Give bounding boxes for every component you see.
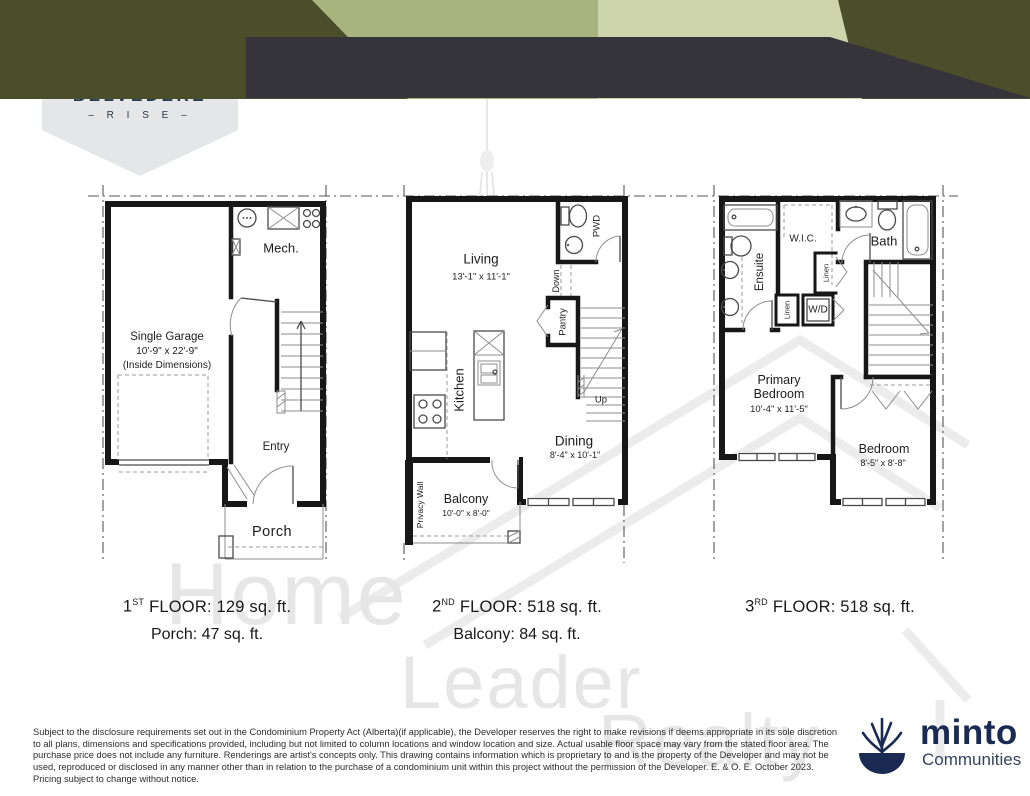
primary-windows (737, 452, 817, 462)
label-linen-b: Linen (783, 301, 792, 319)
legal-disclaimer: Subject to the disclosure requirements s… (33, 727, 839, 786)
floor3-plan-drawing (710, 185, 960, 565)
floor2-plan-drawing (400, 185, 645, 565)
label-pwd: PWD (592, 215, 603, 237)
developer-division: Communities (922, 750, 1021, 770)
stairs-floor3 (869, 262, 933, 375)
garage-pad-outline (118, 375, 208, 460)
label-ensuite: Ensuite (754, 253, 766, 291)
label-wic: W.I.C. (789, 234, 816, 245)
label-up: Up (595, 395, 607, 406)
bedroom-door (841, 377, 873, 409)
garage-hall-door (230, 298, 277, 336)
label-linen-a: Linen (822, 264, 831, 282)
label-privacy-wall: Privacy Wall (415, 482, 425, 528)
floor2-caption: 2NDFLOOR: 518 sq. ft. Balcony: 84 sq. ft… (397, 597, 637, 644)
label-kitchen: Kitchen (452, 368, 467, 411)
balcony-door (490, 455, 519, 488)
label-balcony: Balcony (444, 492, 488, 506)
label-porch: Porch (252, 524, 292, 540)
label-dining-dims: 8'-4" x 10'-1" (550, 450, 600, 460)
community-tagline: – R I S E – (42, 110, 238, 121)
powder-room (558, 199, 620, 262)
front-door (247, 466, 297, 509)
label-bedroom: Bedroom (859, 442, 910, 456)
garage-door (119, 457, 209, 472)
label-living-dims: 13'-1" x 11'-1" (452, 272, 510, 283)
stairs-floor1 (277, 301, 323, 413)
label-primary-bedroom: Primary Bedroom 10'-4" x 11'-5" (750, 373, 808, 415)
ensuite-fixtures (722, 205, 778, 323)
label-down: Down (551, 269, 561, 292)
label-entry: Entry (263, 441, 290, 453)
label-balcony-dims: 10'-0" x 8'-0" (442, 508, 490, 518)
floor1-plan-drawing (95, 185, 340, 565)
label-bath: Bath (871, 234, 898, 249)
floor3-caption: 3RDFLOOR: 518 sq. ft. (710, 597, 950, 617)
label-garage: Single Garage 10'-9" x 22'-9" (Inside Di… (123, 331, 211, 371)
label-living: Living (463, 252, 498, 267)
dining-windows (526, 497, 618, 507)
floor1-caption: 1STFLOOR: 129 sq. ft. Porch: 47 sq. ft. (87, 597, 327, 644)
cn-tower-watermark (480, 95, 494, 196)
label-pantry: Pantry (558, 308, 569, 335)
header-banner (0, 0, 1030, 100)
label-mech: Mech. (263, 241, 298, 256)
entry-closet (227, 465, 254, 499)
bath-door (842, 233, 870, 263)
open-to-below-rail (561, 265, 571, 296)
developer-name: minto (920, 713, 1018, 753)
label-bedroom-dims: 8'-5" x 8'-8" (860, 458, 905, 468)
label-dining: Dining (555, 434, 593, 449)
floorplan-flyer: Home Leader Realty BELLHAVEN BACK-TO-BAC… (0, 0, 1030, 796)
label-wd: W/D (808, 305, 827, 316)
bedroom-closet (866, 377, 933, 409)
ensuite-door (743, 300, 772, 330)
minto-tree-icon (856, 716, 908, 774)
bath-fixtures (840, 201, 932, 259)
bedroom-windows (841, 497, 927, 507)
